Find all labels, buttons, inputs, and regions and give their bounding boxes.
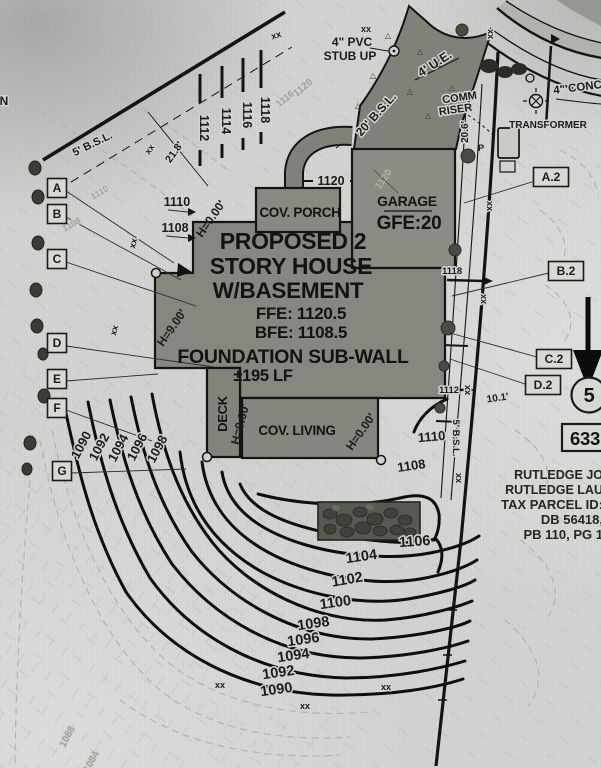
station-marker-label: E — [53, 372, 61, 386]
concrete-triangle: △ — [370, 71, 377, 80]
ffe-label: FFE: 1120.5 — [256, 304, 346, 323]
station-marker-label: C.2 — [545, 352, 564, 366]
transformer-box-icon — [498, 128, 519, 158]
silt-fence-xx: xx — [300, 701, 310, 711]
owner-line3: TAX PARCEL ID: — [501, 497, 601, 512]
pvc-stubup-label-2: STUB UP — [324, 49, 377, 63]
contour-1112-right: 1112 — [439, 385, 459, 396]
station-marker-label: D — [53, 336, 62, 350]
concrete-triangle: △ — [435, 59, 442, 68]
house-title-line3: W/BASEMENT — [213, 278, 364, 303]
station-marker-label: G — [57, 464, 66, 478]
garage-label: GARAGE — [377, 193, 437, 209]
station-marker-C: C — [48, 250, 67, 269]
concrete-triangle: △ — [355, 101, 362, 110]
contour-1114-top: 1114 — [219, 108, 233, 134]
silt-fence-xx: xx — [485, 29, 495, 39]
contour-1110-bottom: 1110 — [417, 428, 446, 445]
silt-fence-xx: xx — [361, 24, 371, 34]
site-plan-page: 4" PVCSTUB UP4' U.E.COMMRISERTRANSFORMER… — [0, 0, 601, 768]
station-marker-label: B — [53, 207, 62, 221]
foundation-label: FOUNDATION SUB-WALL — [177, 346, 409, 368]
owner-line4: DB 56418, — [541, 512, 601, 527]
contour-1106: 1106 — [398, 533, 431, 551]
silt-fence-xx: xx — [453, 473, 463, 483]
concrete-triangle: △ — [425, 111, 432, 120]
deck-label: DECK — [215, 395, 230, 432]
contour-1118-right: 1118 — [442, 266, 462, 277]
power-pole-label: P — [478, 143, 485, 154]
station-marker-label: D.2 — [534, 378, 553, 392]
contour-1110-left: 1110 — [164, 195, 190, 209]
address-number: 633 — [570, 428, 600, 449]
pvc-stubup-label-1: 4" PVC — [332, 35, 373, 49]
silt-fence-xx: xx — [462, 385, 472, 395]
station-marker-F: F — [48, 399, 67, 418]
contour-1108-left: 1108 — [161, 221, 188, 235]
pedestal — [497, 66, 513, 78]
concrete-triangle: △ — [449, 83, 456, 92]
station-marker-B.2: B.2 — [549, 262, 584, 281]
concrete-triangle: △ — [407, 87, 414, 96]
station-marker-label: A.2 — [542, 170, 561, 184]
contour-1116-top: 1116 — [240, 102, 254, 128]
silt-fence-xx: xx — [484, 201, 494, 211]
pedestal — [511, 63, 527, 75]
station-marker-label: F — [53, 401, 60, 415]
concrete-triangle: △ — [385, 31, 392, 40]
bsl-5-right-label: 5' B.S.L. — [450, 419, 461, 456]
foundation-lf-label: ±195 LF — [233, 367, 292, 385]
silt-fence-xx: xx — [478, 294, 488, 304]
bfe-label: BFE: 1108.5 — [255, 323, 347, 342]
station-marker-label: A — [53, 181, 62, 195]
owner-line1: RUTLEDGE JO — [514, 468, 601, 482]
gfe-label: GFE:20 — [377, 213, 442, 234]
contour-1112-top: 1112 — [197, 115, 211, 141]
station-marker-C.2: C.2 — [537, 350, 572, 369]
contour-1118-top: 1118 — [258, 97, 272, 123]
station-marker-B: B — [48, 205, 67, 224]
station-marker-label: B.2 — [557, 264, 576, 278]
station-marker-label: C — [53, 252, 62, 266]
lot-number: 5 — [584, 385, 595, 407]
station-marker-D: D — [48, 334, 67, 353]
cov-porch-label: COV. PORCH — [259, 205, 340, 220]
dim-20-6: 20.6' — [460, 121, 471, 143]
station-marker-A.2: A.2 — [534, 168, 569, 187]
silt-fence-xx: xx — [381, 682, 391, 692]
owner-line2: RUTLEDGE LAU — [505, 483, 601, 497]
owner-line5: PB 110, PG 1 — [524, 527, 601, 542]
station-marker-E: E — [48, 370, 67, 389]
station-marker-A: A — [48, 179, 67, 198]
house-title-line1: PROPOSED 2 — [220, 228, 367, 254]
cov-living-label: COV. LIVING — [258, 423, 335, 438]
silt-fence-xx: xx — [215, 680, 225, 690]
pedestal — [480, 59, 498, 73]
transformer-label: TRANSFORMER — [509, 120, 588, 131]
station-marker-G: G — [53, 462, 72, 481]
concrete-triangle: △ — [417, 47, 424, 56]
house-title-line2: STORY HOUSE — [210, 253, 372, 279]
site-plan-svg: 4" PVCSTUB UP4' U.E.COMMRISERTRANSFORMER… — [0, 0, 601, 768]
contour-1120-court: 1120 — [317, 174, 344, 188]
edge-letter-n: N — [0, 94, 8, 108]
station-marker-D.2: D.2 — [526, 376, 561, 395]
